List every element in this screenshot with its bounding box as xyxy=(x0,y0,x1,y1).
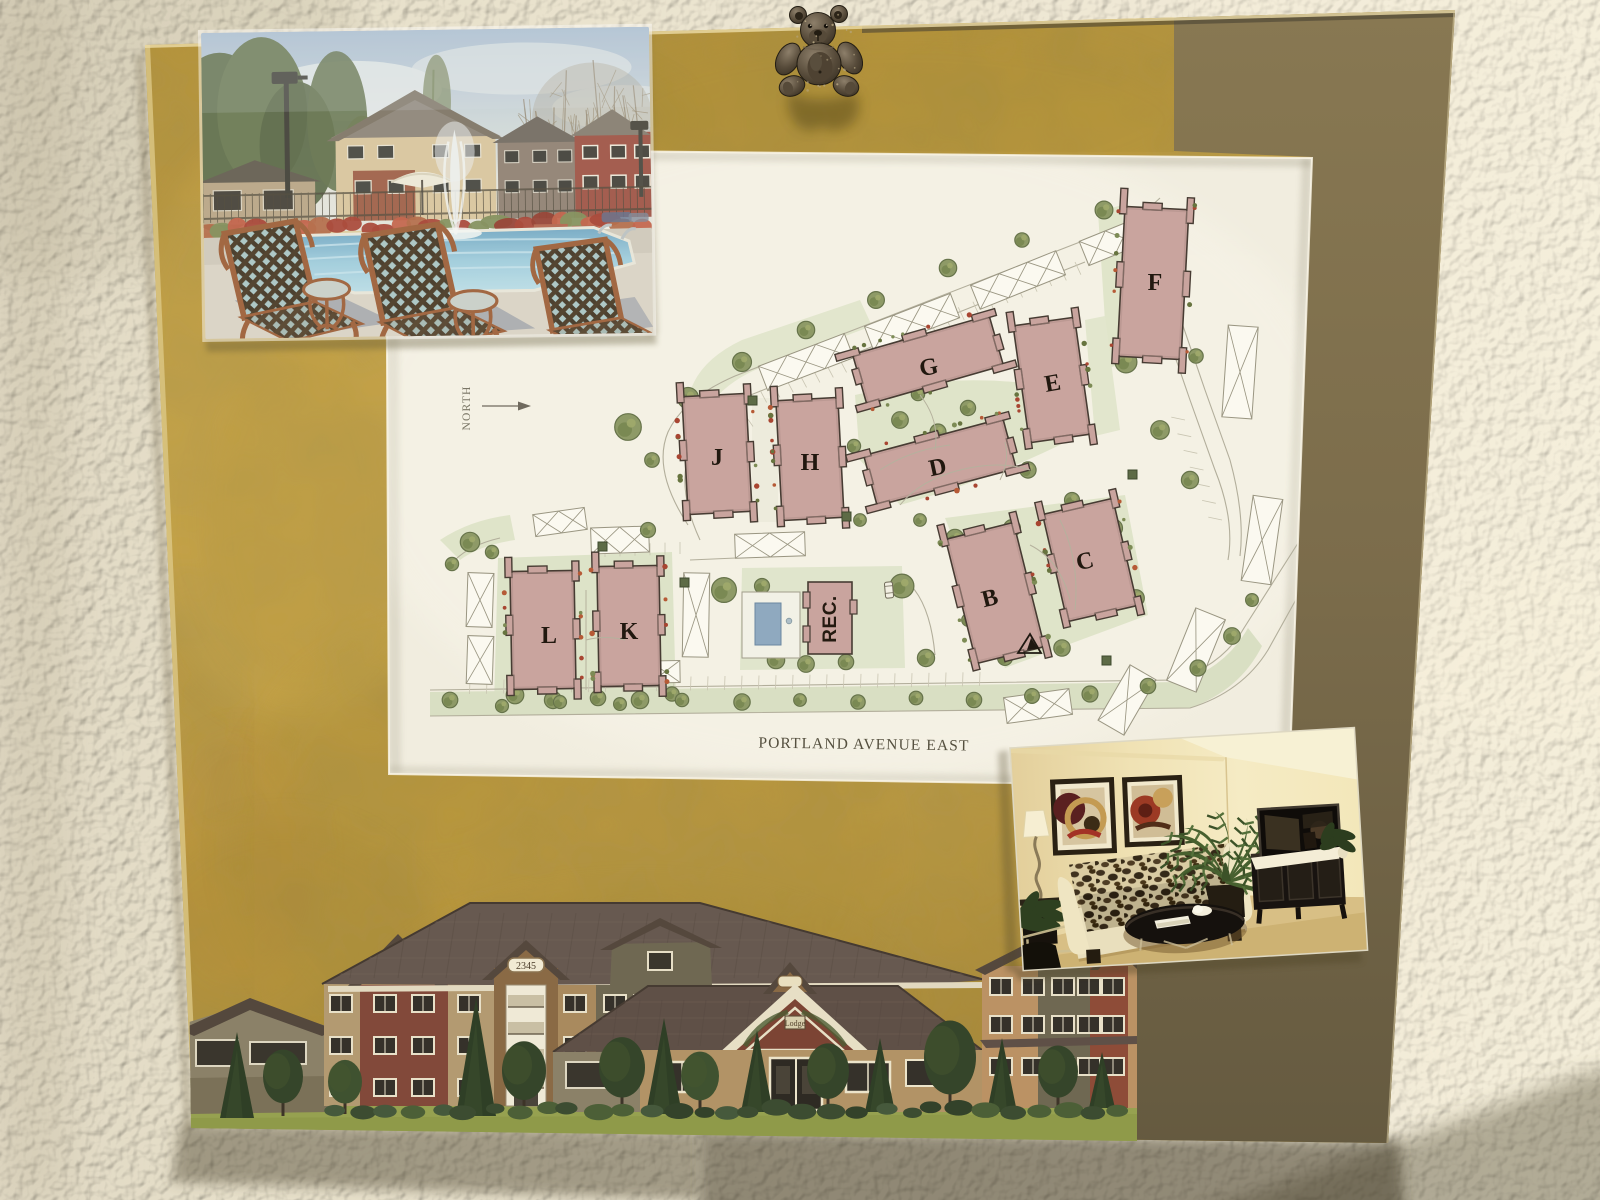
svg-text:L: L xyxy=(541,623,557,649)
svg-text:2345: 2345 xyxy=(516,961,536,972)
svg-text:H: H xyxy=(801,450,820,476)
svg-text:K: K xyxy=(620,619,639,645)
svg-text:Lodge: Lodge xyxy=(785,1019,806,1028)
svg-text:F: F xyxy=(1148,270,1163,296)
svg-text:NORTH: NORTH xyxy=(461,386,473,431)
svg-text:REC.: REC. xyxy=(820,595,841,642)
svg-text:PORTLAND AVENUE EAST: PORTLAND AVENUE EAST xyxy=(758,735,969,755)
svg-text:J: J xyxy=(711,445,723,471)
